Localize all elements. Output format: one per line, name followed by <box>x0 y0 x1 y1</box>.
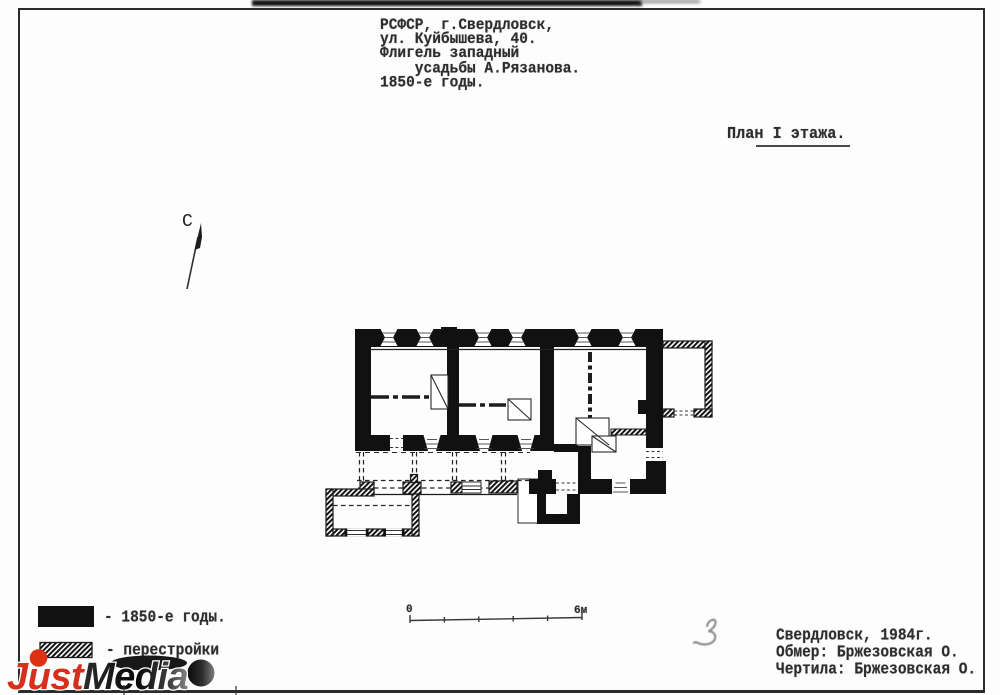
svg-text:Just: Just <box>7 656 85 695</box>
svg-text:С: С <box>182 212 193 232</box>
svg-text:Media: Media <box>83 656 189 695</box>
